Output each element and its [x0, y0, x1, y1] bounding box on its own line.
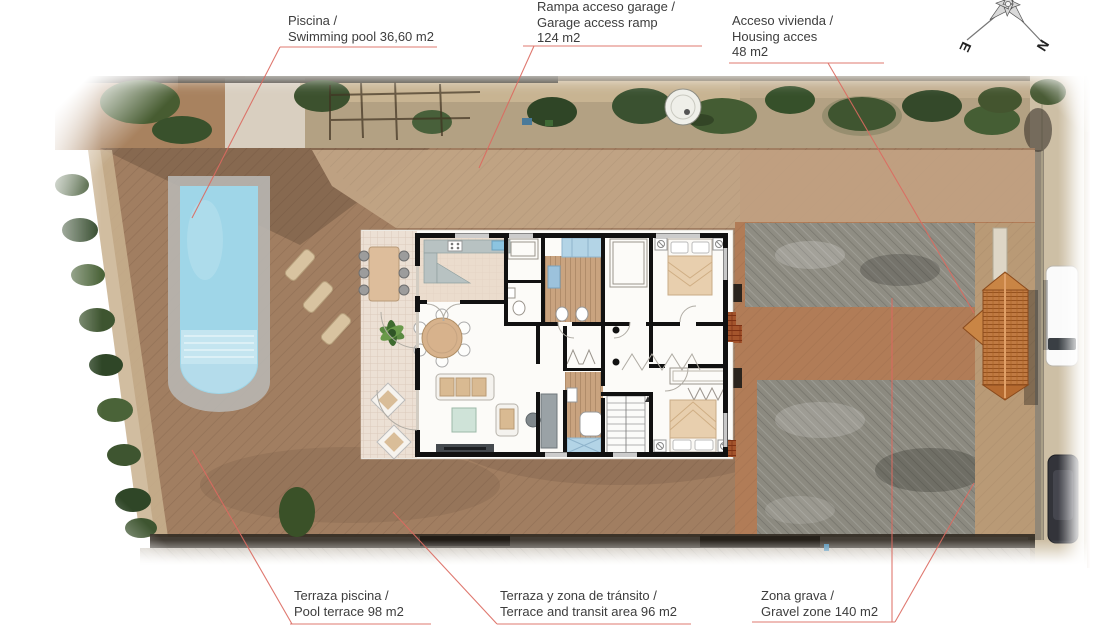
- label-gravel-zone-line1: Zona grava /: [761, 588, 878, 604]
- leader-gravel-zone-diagonal: [895, 483, 974, 622]
- compass-rose: E N: [956, 0, 1052, 55]
- label-transit-area: Terraza y zona de tránsito / Terrace and…: [500, 588, 677, 619]
- label-pool-terrace: Terraza piscina / Pool terrace 98 m2: [294, 588, 404, 619]
- leader-lines: [192, 46, 974, 624]
- leader-housing-access: [828, 63, 974, 313]
- label-pool-line1: Piscina /: [288, 13, 434, 29]
- label-housing-access-line1: Acceso vivienda /: [732, 13, 833, 29]
- label-garage-ramp: Rampa acceso garage / Garage access ramp…: [537, 0, 675, 46]
- label-pool-terrace-line1: Terraza piscina /: [294, 588, 404, 604]
- compass-east-label: E: [956, 39, 974, 54]
- leader-transit-area: [393, 512, 497, 624]
- label-housing-access-line2: Housing acces: [732, 29, 833, 45]
- label-transit-area-line2: Terrace and transit area 96 m2: [500, 604, 677, 620]
- label-pool-terrace-line2: Pool terrace 98 m2: [294, 604, 404, 620]
- label-gravel-zone: Zona grava / Gravel zone 140 m2: [761, 588, 878, 619]
- compass-north-label: N: [1033, 37, 1052, 54]
- label-transit-area-line1: Terraza y zona de tránsito /: [500, 588, 677, 604]
- label-garage-ramp-line2: Garage access ramp: [537, 15, 675, 31]
- annotation-overlay: E N: [0, 0, 1110, 626]
- site-plan-canvas: E N Piscina / Swimming pool 36,60 m2 Ram…: [0, 0, 1110, 626]
- leader-pool: [192, 47, 280, 218]
- leader-garage-ramp: [479, 46, 534, 168]
- label-pool-line2: Swimming pool 36,60 m2: [288, 29, 434, 45]
- label-gravel-zone-line2: Gravel zone 140 m2: [761, 604, 878, 620]
- label-garage-ramp-line1: Rampa acceso garage /: [537, 0, 675, 15]
- label-housing-access-line3: 48 m2: [732, 44, 833, 60]
- label-garage-ramp-line3: 124 m2: [537, 30, 675, 46]
- leader-pool-terrace: [192, 450, 292, 624]
- label-pool: Piscina / Swimming pool 36,60 m2: [288, 13, 434, 44]
- label-housing-access: Acceso vivienda / Housing acces 48 m2: [732, 13, 833, 60]
